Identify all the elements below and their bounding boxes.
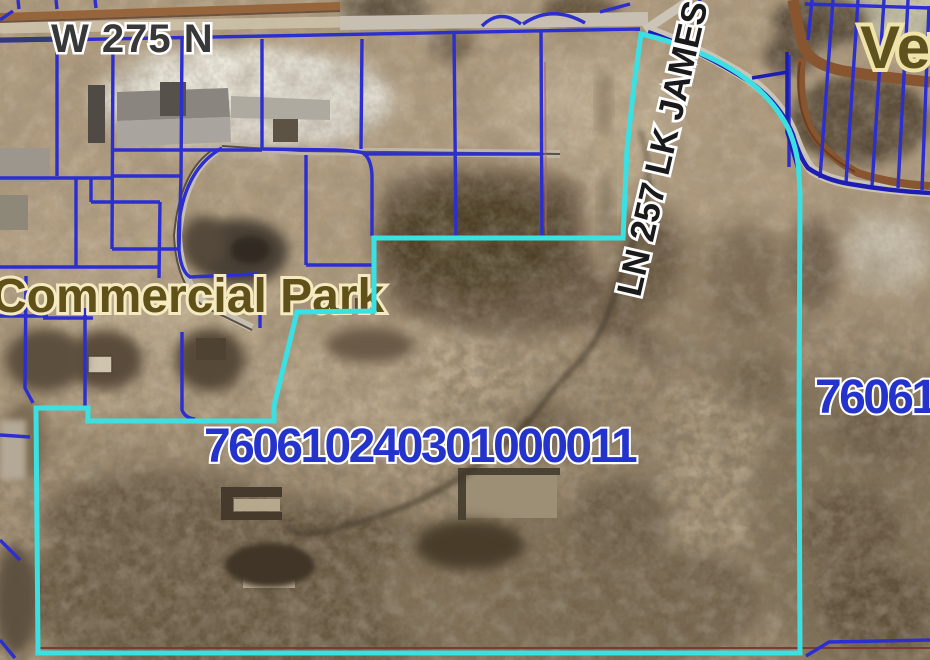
svg-text:760610: 760610	[815, 371, 930, 424]
svg-text:Commercial Park: Commercial Park	[0, 270, 385, 323]
svg-text:760610240301000011: 760610240301000011	[204, 420, 637, 473]
svg-text:W 275 N: W 275 N	[51, 17, 214, 61]
svg-text:Vet: Vet	[860, 14, 930, 81]
